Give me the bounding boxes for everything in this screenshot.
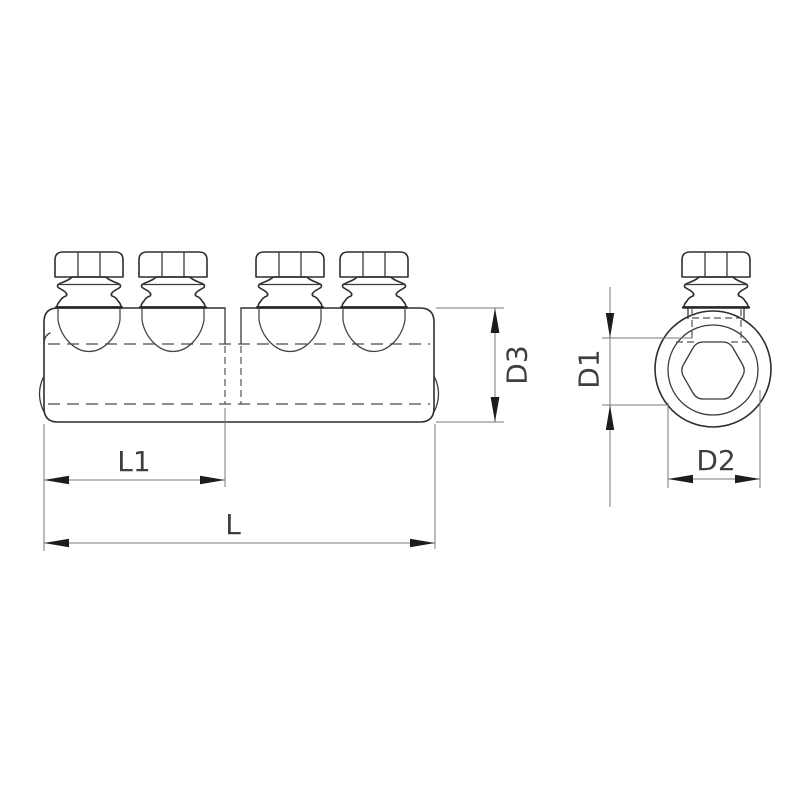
technical-drawing-page: D3 L1 L D1 (0, 0, 800, 800)
bolt-seat-2 (142, 309, 204, 352)
dimension-label-D1: D1 (573, 349, 606, 388)
dimension-D1: D1 (573, 287, 693, 507)
dimension-D2: D2 (668, 390, 760, 488)
dimension-label-D2: D2 (696, 444, 735, 477)
side-view (40, 252, 439, 422)
hex-bore (682, 342, 745, 399)
end-view (655, 252, 771, 427)
drawing-canvas: D3 L1 L D1 (0, 0, 800, 800)
shear-bolt-4 (340, 252, 408, 308)
dimension-label-L: L (225, 508, 241, 541)
dimension-L: L (44, 424, 435, 549)
left-end-edge (44, 333, 50, 344)
shear-bolt-end-view (682, 252, 750, 308)
dimensions: D3 L1 L D1 (44, 287, 760, 551)
outer-circle (655, 311, 771, 427)
dimension-label-D3: D3 (501, 345, 534, 384)
shear-bolt-2 (139, 252, 207, 308)
shear-bolt-1 (55, 252, 123, 308)
bolt-seat-3 (259, 309, 321, 352)
bolt-seat-1 (58, 309, 120, 352)
dimension-L1: L1 (44, 408, 225, 551)
connector-body (44, 308, 434, 422)
dimension-label-L1: L1 (117, 445, 150, 478)
dimension-D3: D3 (436, 308, 534, 422)
bolt-seat-4 (343, 309, 405, 352)
shear-bolt-3 (256, 252, 324, 308)
